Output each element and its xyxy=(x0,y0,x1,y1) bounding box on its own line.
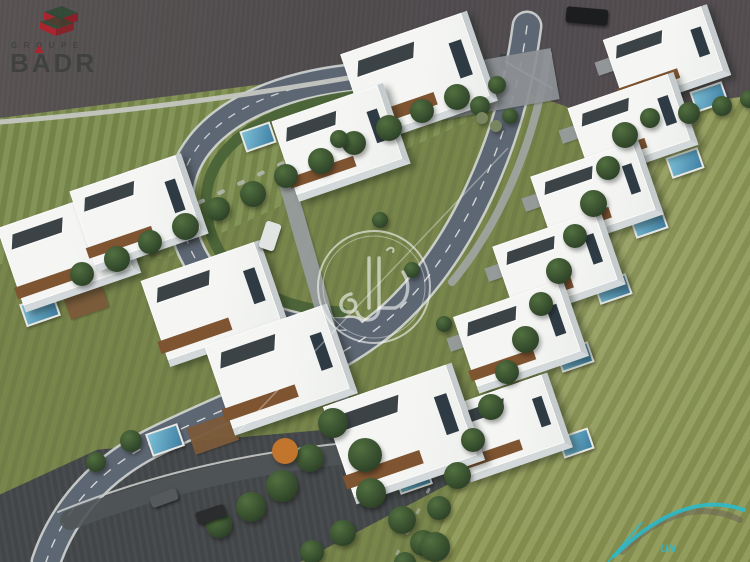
corner-logo-text: UN xyxy=(660,543,677,555)
badr-red-accent xyxy=(34,45,44,53)
car xyxy=(565,6,608,26)
badr-label: BADR xyxy=(10,50,104,76)
groupe-badr-logo: GROUPE BADR xyxy=(8,4,104,76)
car xyxy=(149,488,179,509)
aerial-render-scene: GROUPE BADR UN xyxy=(0,0,750,562)
corner-swoosh-logo: UN xyxy=(608,486,750,562)
car xyxy=(258,220,282,252)
badr-building-icon xyxy=(28,4,84,38)
car xyxy=(195,504,228,526)
cars-layer xyxy=(0,0,750,562)
